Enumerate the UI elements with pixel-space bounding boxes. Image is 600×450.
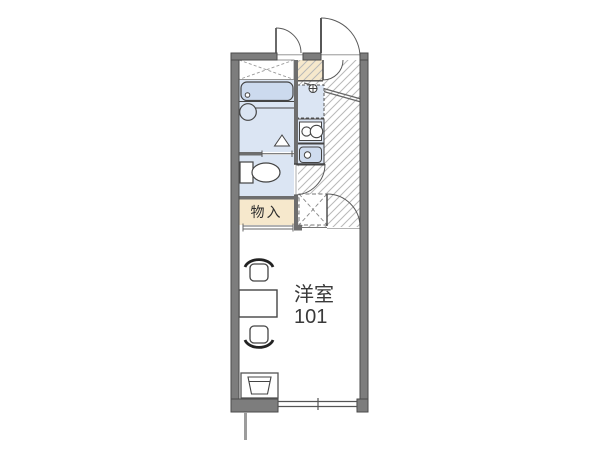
stove-burner-small (302, 127, 311, 136)
sink-drain (304, 152, 310, 158)
room-label: 洋室 101 (294, 284, 334, 328)
room-number-label: 101 (294, 306, 334, 328)
entrance-door (321, 18, 360, 57)
bathtub-drain (245, 93, 250, 98)
utility-door (276, 28, 303, 55)
tv-stand (241, 373, 278, 398)
balcony-divider (244, 412, 247, 440)
table (239, 290, 277, 317)
window (278, 398, 357, 410)
gas-stove (297, 119, 324, 143)
toilet (240, 162, 280, 183)
toilet-bowl (252, 163, 280, 182)
overhead-storage (239, 60, 294, 80)
washing-machine-space (299, 194, 327, 225)
room-type-label: 洋室 (294, 284, 334, 306)
chair-bottom (245, 326, 273, 347)
toilet-tank (240, 162, 253, 183)
floor-plan: 物入 洋室 101 (0, 0, 600, 450)
chair-top (245, 260, 273, 281)
floor-plan-drawing (0, 0, 600, 450)
storage-label: 物入 (239, 199, 294, 225)
kitchen-sink (297, 144, 324, 165)
bathtub (241, 82, 293, 101)
water-heater (309, 84, 318, 93)
stove-burner-large (310, 125, 322, 137)
